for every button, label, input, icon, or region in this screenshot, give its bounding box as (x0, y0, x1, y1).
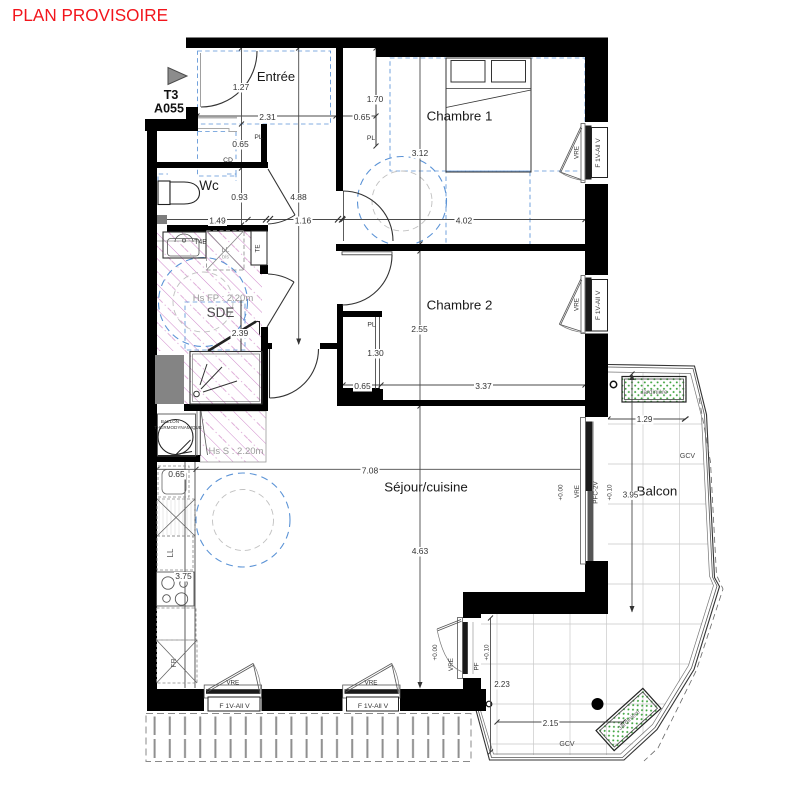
svg-text:VRE: VRE (365, 680, 378, 687)
svg-text:0.65: 0.65 (232, 139, 249, 149)
svg-text:3.12: 3.12 (412, 148, 429, 158)
svg-text:PF: PF (473, 662, 480, 670)
svg-text:b/s: b/s (222, 255, 229, 261)
svg-text:0.65: 0.65 (168, 469, 185, 479)
svg-text:3.75: 3.75 (175, 571, 192, 581)
svg-text:+0.10: +0.10 (607, 484, 614, 500)
svg-text:VRE: VRE (448, 658, 455, 671)
svg-text:1.70: 1.70 (367, 94, 384, 104)
svg-text:+0.10: +0.10 (483, 644, 490, 660)
svg-text:Wc: Wc (199, 178, 219, 193)
svg-text:PLAN PROVISOIRE: PLAN PROVISOIRE (12, 5, 168, 25)
svg-text:GCV: GCV (559, 741, 575, 748)
svg-text:PL: PL (254, 134, 263, 141)
svg-text:4.63: 4.63 (412, 546, 429, 556)
svg-text:PL: PL (367, 322, 376, 329)
svg-text:CD: CD (223, 157, 233, 164)
svg-text:SDE: SDE (207, 305, 235, 320)
svg-text:VRE: VRE (574, 146, 581, 159)
svg-text:Jardinière: Jardinière (640, 389, 668, 396)
svg-text:T4B: T4B (194, 239, 207, 246)
svg-text:1.49: 1.49 (209, 216, 226, 226)
svg-text:2.55: 2.55 (411, 324, 428, 334)
svg-text:VRE: VRE (574, 485, 581, 498)
svg-text:Chambre 2: Chambre 2 (427, 298, 493, 313)
svg-text:4.02: 4.02 (456, 216, 473, 226)
svg-text:Hs FP : 2.20m: Hs FP : 2.20m (193, 293, 254, 304)
svg-text:Séjour/cuisine: Séjour/cuisine (384, 480, 468, 495)
svg-text:A055: A055 (154, 102, 184, 116)
svg-text:LL: LL (222, 247, 230, 254)
svg-text:0.65: 0.65 (354, 112, 371, 122)
svg-text:Hs S : 2.20m: Hs S : 2.20m (209, 446, 264, 457)
svg-text:0.93: 0.93 (231, 192, 248, 202)
svg-text:+0.00: +0.00 (432, 644, 439, 660)
svg-text:7.08: 7.08 (362, 466, 379, 476)
svg-text:F 1V-All V: F 1V-All V (358, 703, 389, 710)
svg-text:Chambre 1: Chambre 1 (427, 109, 493, 124)
svg-text:TE: TE (255, 244, 262, 252)
svg-text:1.30: 1.30 (367, 348, 384, 358)
svg-text:T3: T3 (164, 88, 179, 102)
svg-text:+0.00: +0.00 (558, 484, 565, 500)
svg-text:Balcon: Balcon (637, 484, 678, 499)
svg-text:1.16: 1.16 (295, 216, 312, 226)
svg-text:2.31: 2.31 (259, 112, 276, 122)
svg-text:PFC-2V: PFC-2V (592, 481, 599, 504)
svg-text:Entrée: Entrée (257, 69, 295, 84)
svg-text:LL: LL (166, 548, 175, 557)
svg-text:1.27: 1.27 (233, 82, 250, 92)
svg-text:F 1V-All V: F 1V-All V (595, 138, 602, 168)
svg-text:VRE: VRE (574, 298, 581, 311)
svg-text:F 1V-All V: F 1V-All V (219, 703, 250, 710)
svg-text:2.15: 2.15 (543, 719, 559, 728)
svg-text:2.23: 2.23 (494, 680, 510, 689)
svg-text:PL: PL (367, 135, 376, 142)
svg-text:4.88: 4.88 (290, 192, 307, 202)
svg-text:BALLON: BALLON (161, 419, 179, 424)
svg-text:0.65: 0.65 (354, 381, 371, 391)
svg-text:2.39: 2.39 (232, 328, 249, 338)
svg-text:THERMODYNAMIQUE: THERMODYNAMIQUE (154, 425, 202, 430)
svg-text:VRE: VRE (226, 680, 239, 687)
svg-text:F 1V-All V: F 1V-All V (595, 290, 602, 320)
svg-text:3.95: 3.95 (623, 491, 639, 500)
svg-text:GCV: GCV (680, 453, 696, 460)
svg-text:1.29: 1.29 (637, 415, 653, 424)
svg-text:FR: FR (171, 658, 178, 667)
svg-text:3.37: 3.37 (475, 381, 492, 391)
